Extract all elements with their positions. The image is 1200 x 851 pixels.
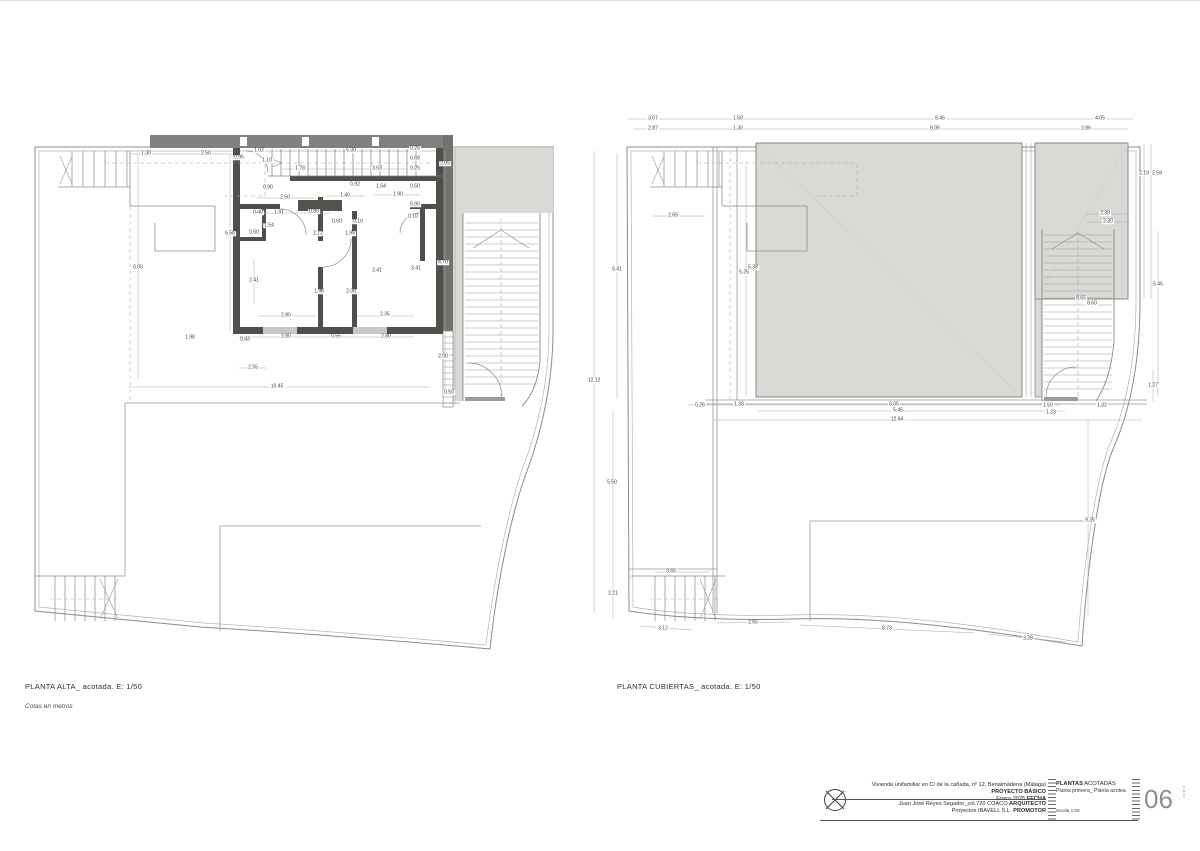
binding-marks-right (1132, 779, 1140, 820)
plan-linework (0, 1, 1200, 851)
project-description: Vivienda unifamiliar en C/ de la cañada,… (872, 782, 1046, 788)
dim-label: 2.41 (248, 278, 260, 283)
architect-name: Juan José Reyes Segador_col.720 COACO (899, 801, 1009, 807)
dim-label: 0.60 (331, 219, 343, 224)
left-plan-caption: PLANTA ALTA_ acotada. E: 1/50 (25, 682, 142, 691)
dim-label: 0.68 (409, 156, 421, 161)
left-plan-linework (35, 135, 553, 649)
dim-label: 12.12 (587, 378, 602, 383)
dim-label: 1.91 (273, 210, 285, 215)
architect-label: ARQUITECTO (1009, 801, 1046, 807)
dim-label: 2.50 (200, 151, 212, 156)
dim-label: 1.98 (184, 335, 196, 340)
sheet-number: 06 (1144, 781, 1173, 817)
dim-label: 0.55 (330, 334, 342, 339)
dim-label: 1.50 (1042, 403, 1054, 408)
dim-label: 1.02 (253, 148, 265, 153)
title-block-sheet-info: PLANTAS ACOTADAS Planta primera_ Planta … (1056, 781, 1130, 820)
dim-label: 8.05 (929, 126, 941, 131)
dim-label: 8.60 (1086, 301, 1098, 306)
sheet-number-caption: plano (1182, 786, 1187, 798)
sheet-subtitle: Planta primera_ Planta azotea (1056, 788, 1130, 795)
dim-label: 3.28 (1022, 636, 1034, 641)
dim-label: 3.41 (410, 266, 422, 271)
dim-label: 12.64 (890, 417, 905, 422)
dim-label: 1.40 (339, 193, 351, 198)
dim-label: 1.54 (263, 223, 275, 228)
dim-label: 3.07 (647, 116, 659, 121)
sheet-title-bold: PLANTAS (1056, 781, 1083, 787)
dim-label: 4.70 (437, 260, 449, 265)
right-plan-linework (594, 119, 1158, 646)
dim-label: 2.80 (380, 334, 392, 339)
dim-label: 2.55 (247, 365, 259, 370)
dim-label: 2.05 (439, 161, 451, 166)
dim-label: 0.50 (409, 184, 421, 189)
dim-label: 2.80 (280, 313, 292, 318)
promoter-name: Proyectos IBAVELL S.L. (952, 808, 1014, 814)
dim-label: 2.50 (279, 195, 291, 200)
title-block-divider (832, 799, 1046, 800)
dim-label: 5.41 (611, 267, 623, 272)
title-block-project-info: Vivienda unifamiliar en C/ de la cañada,… (844, 780, 1046, 821)
dim-label: 1.30 (140, 151, 152, 156)
dim-label: 2.12 (312, 231, 324, 236)
dim-label: 1.32 (1096, 403, 1108, 408)
dim-label: 8.65 (1075, 296, 1087, 301)
dim-label: 2.59 (1151, 171, 1163, 176)
dim-label: 5.90 (409, 202, 421, 207)
dim-label: 2.00 (437, 354, 449, 359)
dim-label: 2.21 (607, 591, 619, 596)
dim-label: 0.50 (443, 390, 455, 395)
dim-label: 1.10 (261, 158, 273, 163)
dim-label: 8.73 (881, 626, 893, 631)
dim-label: 3.53 (371, 166, 383, 171)
dim-label: 0.95 (233, 155, 245, 160)
drawing-sheet: 1.302.500.951.021.101.785.303.530.250.68… (0, 0, 1200, 851)
dim-label: 3.41 (371, 268, 383, 273)
dim-label: 0.10 (352, 219, 364, 224)
dim-label: 2.35 (379, 312, 391, 317)
dim-label: 1.50 (732, 116, 744, 121)
dim-label: 1.78 (294, 166, 306, 171)
dim-label: 1.54 (375, 184, 387, 189)
dim-label: 0.80 (308, 209, 320, 214)
dim-label: 2.08 (345, 289, 357, 294)
dim-label: 3.65 (665, 569, 677, 574)
dim-label: 0.26 (694, 403, 706, 408)
dim-label: 0.90 (262, 185, 274, 190)
dim-label: 3.12 (657, 626, 669, 631)
dim-label: 0.10 (407, 214, 419, 219)
sheet-title-rest: ACOTADAS (1083, 781, 1116, 787)
promoter-label: PROMOTOR (1013, 808, 1046, 814)
dim-label: 10.45 (270, 384, 285, 389)
dim-label: 1.27 (1147, 383, 1159, 388)
dim-label: 1.98 (313, 289, 325, 294)
dim-label: 1.23 (1045, 410, 1057, 415)
dim-label: 5.25 (738, 270, 750, 275)
dim-label: 0.25 (409, 166, 421, 171)
binding-marks-left (1048, 779, 1056, 820)
dim-label: 2.80 (280, 334, 292, 339)
dim-label: 0.43 (239, 337, 251, 342)
scale-value: 1:50 (1071, 808, 1080, 813)
dim-label: 0.40 (252, 210, 264, 215)
dim-label: 2.86 (1080, 126, 1092, 131)
dim-label: 5.45 (892, 408, 904, 413)
dim-label: 5.50 (606, 480, 618, 485)
dim-label: 2.65 (667, 213, 679, 218)
dim-label: 1.90 (392, 192, 404, 197)
dim-label: 0.25 (409, 146, 421, 151)
dim-label: 1.30 (732, 126, 744, 131)
dim-label: 2.30 (1102, 219, 1114, 224)
dim-label: 2.65 (747, 620, 759, 625)
dim-label: 9.35 (1084, 518, 1096, 523)
dim-label: 5.45 (1152, 282, 1164, 287)
dim-label: 2.19 (1138, 171, 1150, 176)
dim-label: 2.30 (1099, 211, 1111, 216)
dim-label: 0.05 (132, 265, 144, 270)
dim-label: 0.92 (349, 182, 361, 187)
dim-label: 5.30 (345, 148, 357, 153)
title-block-bottom-rule (820, 820, 1138, 821)
dim-label: 2.87 (647, 126, 659, 131)
dim-label: 0.50 (248, 230, 260, 235)
left-plan-title: PLANTA ALTA_ acotada. E: 1/50 (25, 682, 142, 691)
project-type-label: PROYECTO BÁSICO (991, 789, 1046, 795)
dim-label: 8.45 (934, 116, 946, 121)
scale-label: escala (1056, 808, 1071, 813)
right-plan-caption: PLANTA CUBIERTAS_ acotada. E: 1/50 (617, 682, 761, 691)
right-plan-title: PLANTA CUBIERTAS_ acotada. E: 1/50 (617, 682, 761, 691)
dim-label: 4.05 (1094, 116, 1106, 121)
dim-label: 1.30 (733, 402, 745, 407)
dim-label: 6.56 (224, 231, 236, 236)
left-plan-note: Cotas en metros (25, 703, 73, 710)
dim-label: 1.95 (344, 231, 356, 236)
title-block: Vivienda unifamiliar en C/ de la cañada,… (820, 778, 1192, 823)
